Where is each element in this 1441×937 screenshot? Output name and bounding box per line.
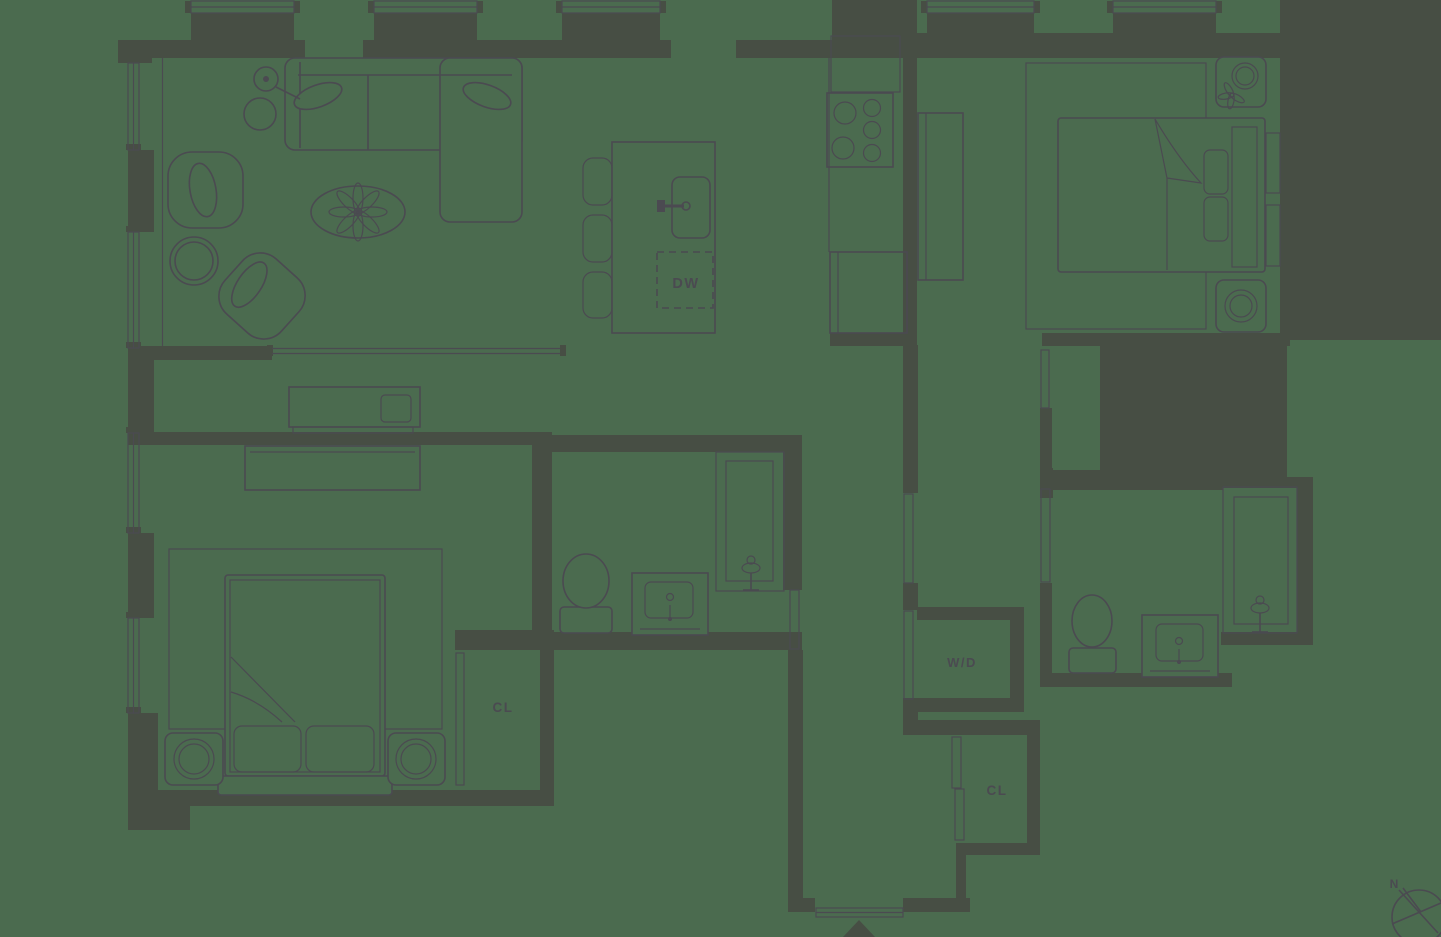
bed bbox=[1058, 118, 1265, 272]
bedroom2-furniture bbox=[918, 57, 1266, 332]
floor-plan-drawing: DW W/D CL CL N bbox=[0, 0, 1441, 937]
hall-pocket-door bbox=[904, 494, 913, 583]
toilet bbox=[1069, 595, 1116, 673]
kitchen bbox=[583, 36, 907, 333]
bar-stools bbox=[583, 158, 612, 318]
dishwasher-label: DW bbox=[672, 276, 699, 292]
bathroom1-fixtures bbox=[560, 452, 784, 635]
dresser bbox=[245, 446, 420, 490]
compass-north-icon bbox=[1392, 888, 1441, 937]
round-side-table bbox=[170, 237, 218, 285]
nightstand bbox=[165, 733, 223, 785]
sofa bbox=[285, 58, 522, 222]
entry-closet-sliding-door bbox=[952, 737, 964, 840]
base-cabinet bbox=[830, 252, 907, 333]
entry-arrow-icon bbox=[843, 920, 875, 937]
bathroom2-fixtures bbox=[1069, 487, 1297, 677]
media-console bbox=[289, 387, 420, 433]
shower-head-icon bbox=[1251, 596, 1269, 632]
kitchen-island bbox=[612, 142, 715, 333]
shower-head-icon bbox=[742, 556, 760, 590]
washer-dryer-door bbox=[904, 611, 913, 699]
nightstand bbox=[1216, 280, 1266, 332]
washer-dryer-label: W/D bbox=[947, 655, 977, 670]
cooktop bbox=[827, 93, 893, 167]
entry-door-sill bbox=[816, 908, 903, 917]
vanity-sink bbox=[1142, 615, 1218, 677]
bathroom2-door bbox=[1041, 489, 1050, 582]
bedroom1-furniture bbox=[165, 387, 445, 795]
dresser bbox=[918, 113, 963, 280]
shower bbox=[1223, 487, 1297, 633]
bedroom-closet-label: CL bbox=[493, 700, 514, 715]
faucet-icon bbox=[657, 200, 690, 212]
entry-closet-label: CL bbox=[987, 783, 1008, 798]
floor-plan: DW W/D CL CL N bbox=[0, 0, 1441, 937]
armchair-angled bbox=[209, 243, 315, 349]
closet1-door bbox=[456, 653, 464, 785]
headboard bbox=[218, 776, 392, 795]
shower bbox=[716, 452, 784, 591]
bedroom1-pocket-door bbox=[272, 349, 560, 354]
side-table bbox=[244, 98, 276, 130]
nightstand bbox=[388, 733, 445, 785]
living-room-furniture bbox=[168, 58, 522, 349]
potted-plant bbox=[311, 183, 405, 241]
bed bbox=[218, 575, 392, 795]
wic-door bbox=[1041, 350, 1049, 408]
vanity-sink bbox=[632, 573, 708, 635]
toilet bbox=[560, 554, 612, 633]
compass-north-label: N bbox=[1390, 877, 1399, 891]
armchair bbox=[168, 152, 243, 228]
nightstand bbox=[1216, 57, 1266, 109]
